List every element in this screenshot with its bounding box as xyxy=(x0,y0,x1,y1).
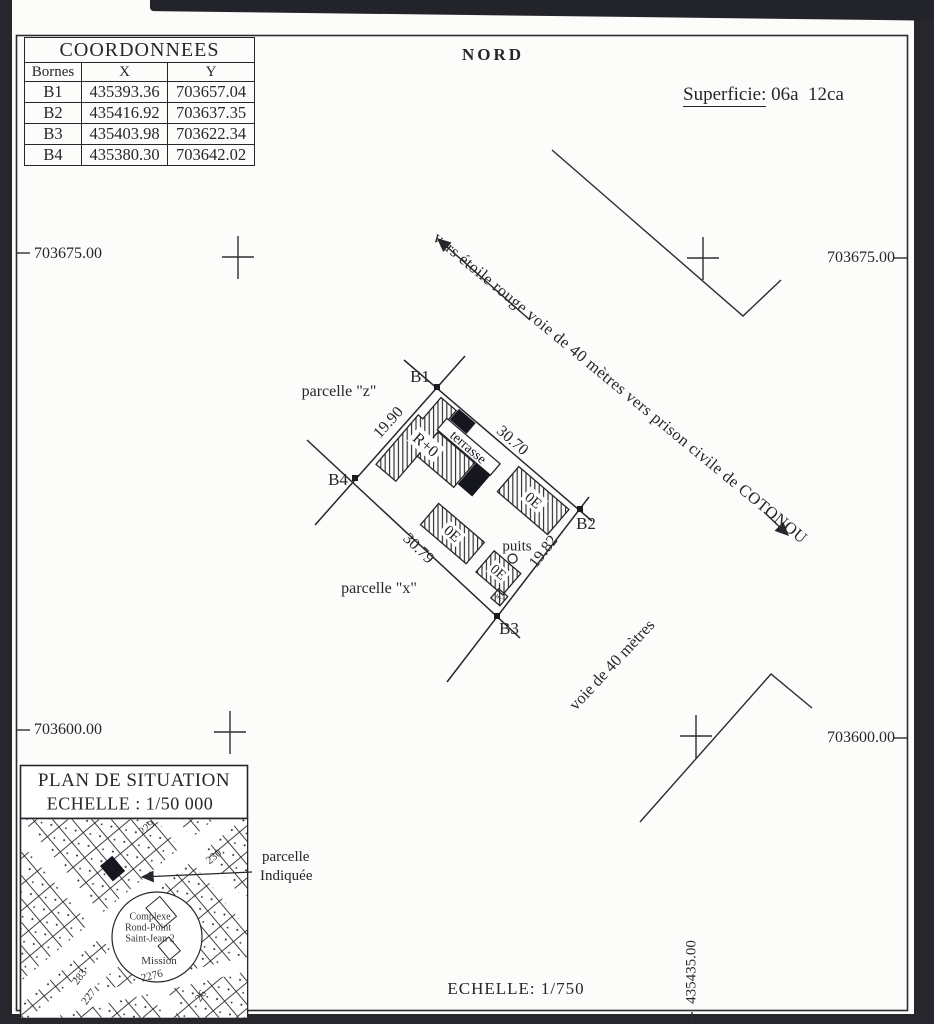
table-row-x: 435380.30 xyxy=(81,144,167,165)
neighbor-parcel-z: parcelle "z" xyxy=(302,383,377,401)
table-row-x: 435416.92 xyxy=(81,102,167,123)
table-row-borne: B4 xyxy=(25,144,81,165)
rond-point-text-2: Rond-Point xyxy=(125,923,171,934)
grid-label-bottom-x: 435435.00 xyxy=(684,940,701,1004)
grid-label-top-left: 703675.00 xyxy=(34,245,102,263)
col-header-x: X xyxy=(81,62,167,81)
mission-label: Mission xyxy=(141,955,176,967)
north-label: NORD xyxy=(462,45,524,65)
rond-point-text-3: Saint-Jean 2 xyxy=(125,934,174,945)
borne-label-b4: B4 xyxy=(328,470,348,490)
well-label: puits xyxy=(502,539,531,556)
superficie-amount: 06a 12ca xyxy=(771,84,844,105)
situation-title: PLAN DE SITUATION xyxy=(38,770,230,792)
situation-scale: ECHELLE : 1/50 000 xyxy=(47,794,213,815)
superficie: Superficie: 06a 12ca xyxy=(683,84,844,106)
scanned-cadastral-plan: R+0 terrasse 0E 0E 0E wc xyxy=(0,0,934,1024)
table-row-y: 703642.02 xyxy=(167,144,254,165)
grid-label-top-right: 703675.00 xyxy=(827,249,895,267)
col-header-bornes: Bornes xyxy=(25,62,81,81)
pointer-label-line2: Indiquée xyxy=(260,868,312,885)
col-header-y: Y xyxy=(167,62,254,81)
table-row-y: 703657.04 xyxy=(167,81,254,102)
coordinates-table-grid: Bornes X Y B1 435393.36 703657.04 B2 435… xyxy=(25,62,254,165)
plan-scale-label: ECHELLE: 1/750 xyxy=(447,979,584,999)
grid-label-bottom-right: 703600.00 xyxy=(827,729,895,747)
coordinates-table-title: COORDONNEES xyxy=(25,38,254,62)
borne-label-b2: B2 xyxy=(576,514,596,534)
table-row-y: 703622.34 xyxy=(167,123,254,144)
grid-crosses xyxy=(214,236,719,758)
table-row-x: 435403.98 xyxy=(81,123,167,144)
table-row-borne: B2 xyxy=(25,102,81,123)
borne-label-b1: B1 xyxy=(410,367,430,387)
table-row-borne: B3 xyxy=(25,123,81,144)
neighbor-parcel-x: parcelle "x" xyxy=(341,580,417,598)
road-edges xyxy=(552,150,812,822)
rond-point-text-1: Complexe xyxy=(129,912,170,923)
pointer-label-line1: parcelle xyxy=(262,849,309,866)
table-row-borne: B1 xyxy=(25,81,81,102)
table-row-x: 435393.36 xyxy=(81,81,167,102)
coordinates-table: COORDONNEES Bornes X Y B1 435393.36 7036… xyxy=(24,37,255,166)
superficie-label: Superficie: xyxy=(683,84,766,107)
grid-label-bottom-left: 703600.00 xyxy=(34,721,102,739)
table-row-y: 703637.35 xyxy=(167,102,254,123)
borne-label-b3: B3 xyxy=(499,619,519,639)
